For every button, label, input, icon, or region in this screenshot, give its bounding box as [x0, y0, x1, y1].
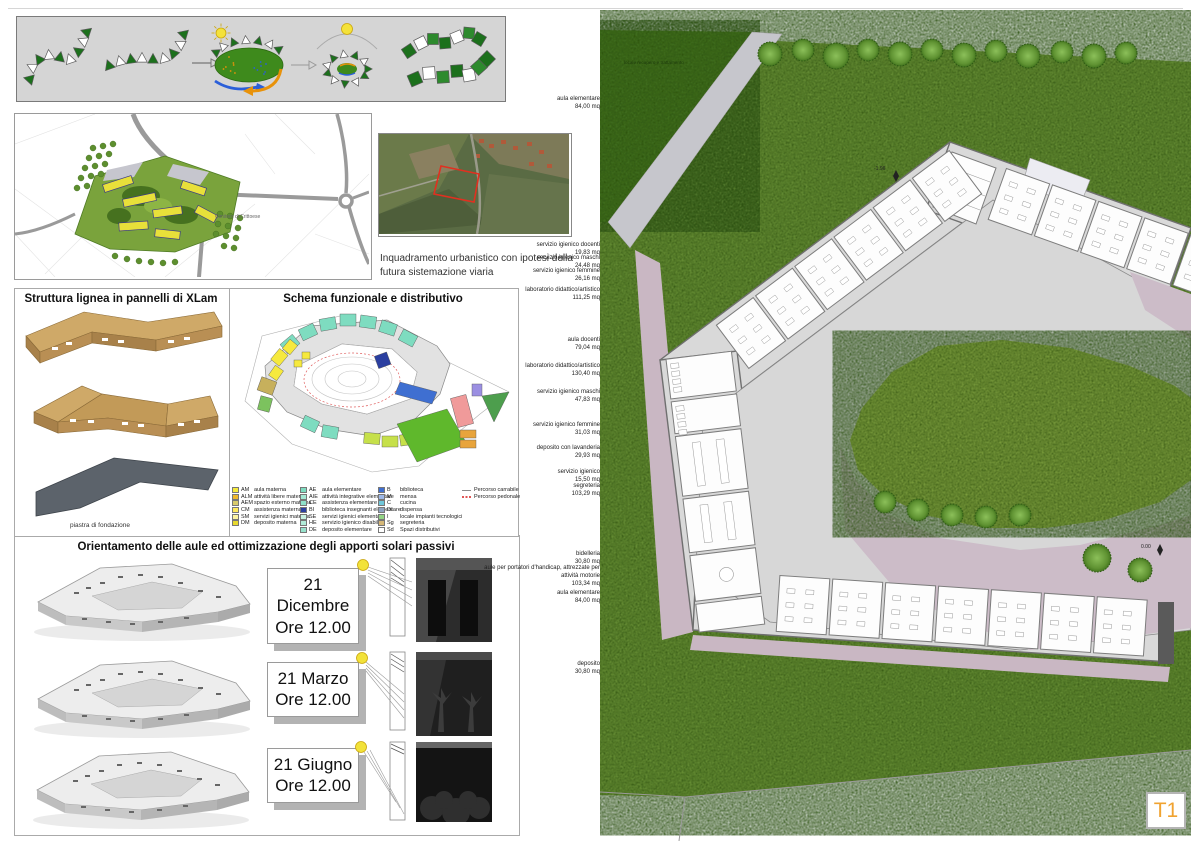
urban-plan-map: Cimitero di Crittoese — [14, 113, 372, 280]
legend-code: I — [387, 514, 400, 520]
legend-label: aula elementare — [322, 487, 361, 493]
legend-item: Sg segreteria — [378, 520, 460, 527]
legend-code: BI — [309, 507, 322, 513]
legend-swatch — [378, 527, 385, 533]
legend-item: AE aula elementare — [300, 487, 376, 494]
legend-swatch — [378, 520, 385, 526]
sun-icon — [356, 742, 367, 753]
plan-room-label: aula elementare84,00 mq — [480, 590, 600, 606]
legend-item: SM servizi igienici materna — [232, 513, 296, 520]
plan-room-label: aule per portatori d'handicap, attrezzat… — [480, 565, 600, 588]
sun-icon — [357, 653, 368, 664]
solar-time: Ore 12.00 — [275, 776, 351, 795]
sun-angle-diagram-marzo — [354, 650, 416, 732]
legend-item: DE deposito elementare — [300, 527, 376, 534]
legend-swatch — [300, 507, 307, 513]
legend-item: CM assistenza materna — [232, 507, 296, 514]
legend-label: dispensa — [400, 507, 422, 513]
legend-code: SM — [241, 514, 254, 520]
legend-swatch — [300, 494, 307, 500]
level-annotation-plaza: 0.00 — [1141, 544, 1151, 550]
site-plan: locale recupero e trattamento -1.96 0.00 — [600, 10, 1191, 841]
legend-code: Di — [387, 507, 400, 513]
legend-line-swatch — [462, 496, 471, 498]
interior-render-giugno — [416, 742, 492, 822]
legend-item: M mensa — [378, 494, 460, 501]
plan-room-label: segreteria103,29 mq — [480, 483, 600, 499]
sheet-code: T1 — [1154, 799, 1179, 823]
plan-room-label: aula docenti79,04 mq — [480, 337, 600, 353]
legend-code: AEM — [241, 500, 254, 506]
sun-angle-diagram-dicembre — [354, 556, 416, 638]
plan-room-label: aula elementare84,00 mq — [480, 96, 600, 112]
legend-code: C — [387, 500, 400, 506]
legend-item: AEM spazio esterno materna — [232, 500, 296, 507]
legend-item: B biblioteca — [378, 487, 460, 494]
legend-label: Spazi distributivi — [400, 527, 440, 533]
legend-code: CE — [309, 500, 322, 506]
legend-servizi: B biblioteca M mensa C cucina Di dispens… — [378, 487, 460, 533]
solar-date-box: 21 Dicembre Ore 12.00 — [267, 568, 359, 644]
solar-date-box: 21 Giugno Ore 12.00 — [267, 748, 359, 803]
legend-code: HE — [309, 520, 322, 526]
sheet-frame-line — [8, 8, 1183, 9]
solar-time: Ore 12.00 — [275, 690, 351, 709]
legend-swatch — [378, 514, 385, 520]
legend-swatch — [300, 487, 307, 493]
legend-elementare: AE aula elementare AIE attività integrat… — [300, 487, 376, 533]
sun-angle-diagram-giugno — [354, 740, 416, 822]
legend-item: CE assistenza elementare — [300, 500, 376, 507]
plan-room-label: servizio igienico femmine31,03 mq — [480, 422, 600, 438]
legend-item: DM deposito materna — [232, 520, 296, 527]
legend-code: B — [387, 487, 400, 493]
cemetery-label: Cimitero di Crittoese — [215, 214, 261, 220]
legend-label: servizi igienici elementare — [322, 514, 385, 520]
legend-item: Sd Spazi distributivi — [378, 527, 460, 534]
legend-item: SE servizi igienici elementare — [300, 513, 376, 520]
concept-diagram — [17, 17, 505, 101]
foundation-label: piastra di fondazione — [70, 522, 130, 529]
sun-icon — [358, 560, 369, 571]
solar-render-dicembre — [22, 552, 262, 647]
legend-label: aula materna — [254, 487, 286, 493]
satellite-photo — [378, 133, 572, 237]
legend-label: assistenza materna — [254, 507, 302, 513]
sheet-code-badge: T1 — [1146, 792, 1186, 829]
legend-swatch — [300, 500, 307, 506]
legend-code: AE — [309, 487, 322, 493]
legend-label: segreteria — [400, 520, 424, 526]
plan-room-label: deposito30,80 mq — [480, 661, 600, 677]
legend-item: AM aula materna — [232, 487, 296, 494]
legend-swatch — [378, 487, 385, 493]
legend-code: SE — [309, 514, 322, 520]
legend-label: mensa — [400, 494, 417, 500]
legend-code: AM — [241, 487, 254, 493]
solar-date-box: 21 Marzo Ore 12.00 — [267, 662, 359, 717]
level-annotation-upper: -1.96 — [874, 166, 886, 172]
xlam-renders: piastra di fondazione — [18, 300, 224, 532]
legend-code: Sd — [387, 527, 400, 533]
functional-schema — [232, 304, 514, 484]
legend-label: biblioteca — [400, 487, 423, 493]
legend-label: cucina — [400, 500, 416, 506]
legend-swatch — [300, 520, 307, 526]
legend-label: attività libere materna — [254, 494, 307, 500]
solar-date: 21 Marzo — [278, 669, 349, 688]
legend-code: M — [387, 494, 400, 500]
solar-time: Ore 12.00 — [275, 618, 351, 637]
legend-swatch — [232, 520, 239, 526]
plan-room-label: servizio igienico femmine26,16 mq — [480, 268, 600, 284]
plan-room-label: laboratorio didattico/artistico111,25 mq — [480, 287, 600, 303]
legend-swatch — [232, 494, 239, 500]
solar-date: 21 Giugno — [274, 755, 352, 774]
solar-render-marzo — [20, 648, 260, 743]
legend-code: Sg — [387, 520, 400, 526]
legend-item: HE servizio igienico disabile — [300, 520, 376, 527]
foundation-slab — [36, 458, 218, 516]
plan-room-label: deposito con lavanderia29,93 mq — [480, 445, 600, 461]
legend-label: deposito elementare — [322, 527, 372, 533]
legend-code: ALM — [241, 494, 254, 500]
solar-date: 21 Dicembre — [277, 575, 350, 615]
water-recovery-label: locale recupero e trattamento — [624, 60, 684, 65]
legend-item: C cucina — [378, 500, 460, 507]
legend-item: I locale impianti tecnologici — [378, 513, 460, 520]
legend-label: assistenza elementare — [322, 500, 377, 506]
plan-room-label: laboratorio didattico/artistico130,40 mq — [480, 363, 600, 379]
legend-item: BI biblioteca insegnanti elementare — [300, 507, 376, 514]
legend-label: deposito materna — [254, 520, 297, 526]
legend-swatch — [232, 500, 239, 506]
presentation-board: Cimitero di Crittoese Inquadramento urba… — [0, 0, 1191, 841]
legend-label: locale impianti tecnologici — [400, 514, 462, 520]
legend-line-swatch — [462, 490, 471, 492]
legend-swatch — [378, 494, 385, 500]
legend-code: CM — [241, 507, 254, 513]
plan-room-label: servizio igienico maschi47,83 mq — [480, 389, 600, 405]
legend-swatch — [232, 507, 239, 513]
legend-code: DM — [241, 520, 254, 526]
legend-item: Di dispensa — [378, 507, 460, 514]
legend-code: DE — [309, 527, 322, 533]
urban-map-drawing: Cimitero di Crittoese — [15, 114, 369, 277]
legend-swatch — [232, 487, 239, 493]
concept-diagram-strip — [16, 16, 506, 102]
solar-render-giugno — [20, 738, 260, 833]
legend-swatch — [232, 514, 239, 520]
legend-item: ALM attività libere materna — [232, 494, 296, 501]
legend-materna: AM aula materna ALM attività libere mate… — [232, 487, 296, 527]
legend-swatch — [300, 514, 307, 520]
legend-swatch — [300, 527, 307, 533]
legend-swatch — [378, 500, 385, 506]
legend-code: AIE — [309, 494, 322, 500]
legend-label: servizio igienico disabile — [322, 520, 381, 526]
legend-swatch — [378, 507, 385, 513]
legend-item: AIE attività integrative elementare — [300, 494, 376, 501]
